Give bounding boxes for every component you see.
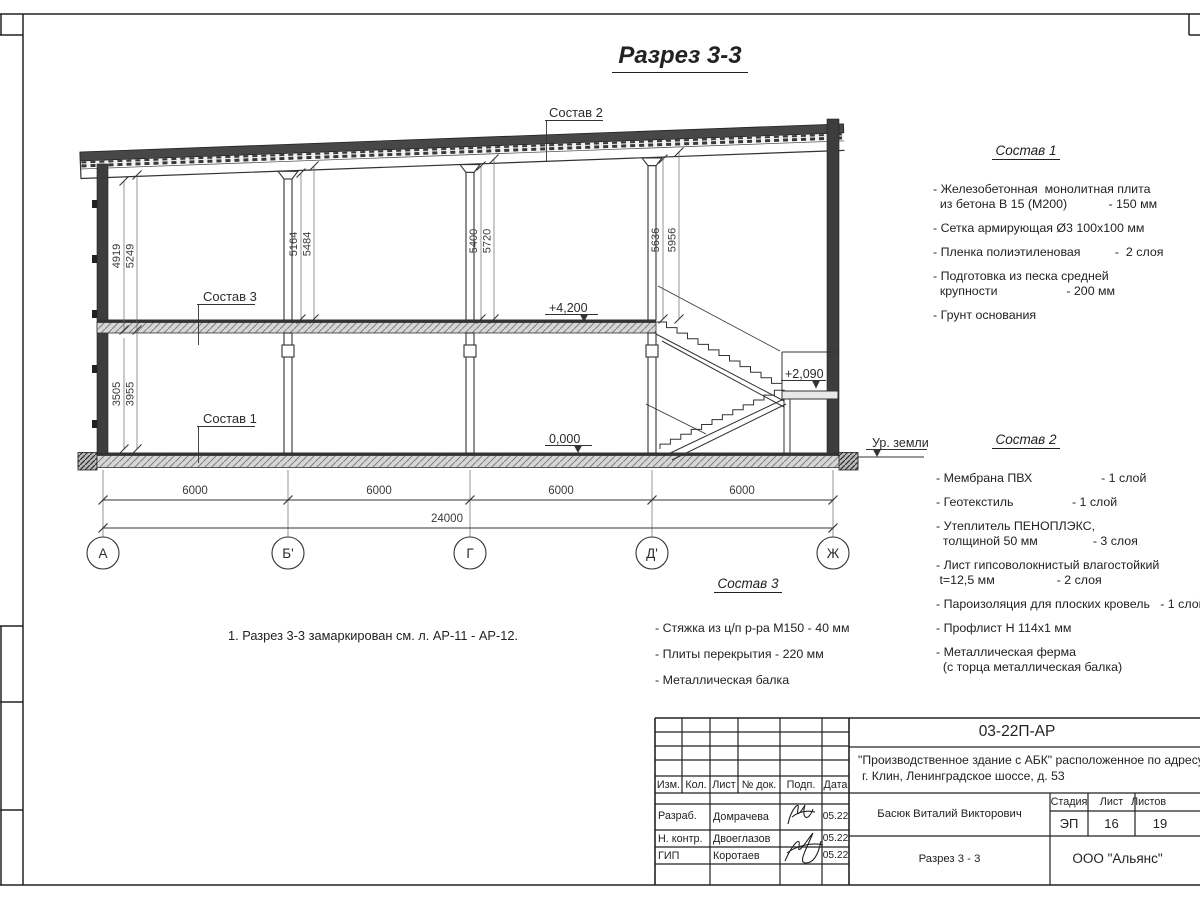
span-dim-3: 6000 — [548, 485, 574, 497]
signature-1 — [788, 805, 815, 824]
composition3-title: Состав 3 — [660, 576, 836, 593]
vertical-dimension-labels: 4919 5249 3505 3955 5164 5484 5400 5720 … — [111, 228, 679, 406]
ground-slab — [78, 453, 924, 471]
elev-floor2: +4,200 — [549, 301, 588, 315]
composition2-list: - Мембрана ПВХ - 1 слой - Геотекстиль - … — [936, 471, 1200, 684]
callout-sostav2: Состав 2 — [549, 105, 603, 120]
ground-level-label: Ур. земли — [872, 436, 929, 450]
list-item: - Стяжка из ц/п р-ра М150 - 40 мм — [655, 621, 849, 636]
date-nkontr: 05.22 — [822, 833, 849, 844]
span-dim-2: 6000 — [366, 485, 392, 497]
page-title: Разрез 3-3 — [540, 42, 820, 73]
project-name-line2: г. Клин, Ленинградское шоссе, д. 53 — [862, 769, 1065, 783]
composition2-title: Состав 2 — [940, 432, 1112, 449]
dim-4919: 4919 — [111, 244, 123, 268]
dim-5400: 5400 — [468, 229, 480, 253]
axis-g: Г — [466, 546, 474, 561]
callout-sostav3: Состав 3 — [203, 289, 257, 304]
composition1-title: Состав 1 — [940, 143, 1112, 160]
axis-bubbles: А Б' Г Д' Ж — [87, 537, 849, 569]
roof — [80, 124, 844, 179]
composition1-list: - Железобетонная монолитная плита из бет… — [933, 182, 1163, 332]
list-item: - Железобетонная монолитная плита из бет… — [933, 182, 1163, 212]
date-gip: 05.22 — [822, 850, 849, 861]
bottom-dimensions: 6000 6000 6000 6000 24000 — [99, 470, 838, 537]
list-item: - Сетка армирующая Ø3 100х100 мм — [933, 221, 1163, 236]
role-nkontr: Н. контр. — [658, 833, 703, 845]
col-kol: Кол. — [682, 779, 710, 791]
date-razrab: 05.22 — [822, 811, 849, 822]
project-name-line1: "Производственное здание с АБК" располож… — [858, 753, 1200, 767]
doc-number: 03-22П-АР — [849, 723, 1185, 741]
axis-d: Д' — [646, 546, 658, 561]
list-item: - Подготовка из песка средней крупности … — [933, 269, 1163, 299]
col-data: Дата — [822, 779, 849, 791]
span-dim-1: 6000 — [182, 485, 208, 497]
list-item: - Металлическая ферма (с торца металличе… — [936, 645, 1200, 675]
dim-5636: 5636 — [650, 228, 662, 252]
dim-5249: 5249 — [125, 244, 137, 268]
signatures — [785, 805, 823, 863]
role-gip: ГИП — [658, 850, 679, 862]
col-list: Лист — [710, 779, 738, 791]
col-izm: Изм. — [655, 779, 682, 791]
list-item: - Лист гипсоволокнистый влагостойкий t=1… — [936, 558, 1200, 588]
elev-zero: 0,000 — [549, 432, 580, 446]
list-item: - Плиты перекрытия - 220 мм — [655, 647, 849, 662]
composition3-list: - Стяжка из ц/п р-ра М150 - 40 мм - Плит… — [655, 621, 849, 697]
role-razrab: Разраб. — [658, 810, 697, 822]
name-korotaev: Коротаев — [713, 850, 760, 862]
dim-5956: 5956 — [667, 228, 679, 252]
name-dvoeglazov: Двоеглазов — [713, 833, 770, 845]
dim-3955: 3955 — [125, 382, 137, 406]
sheet-header: Лист — [1088, 796, 1135, 808]
columns — [278, 158, 662, 453]
sheet-note: 1. Разрез 3-3 замаркирован см. л. АР-11 … — [228, 628, 518, 643]
titleblock-drawing-title: Разрез 3 - 3 — [849, 853, 1050, 865]
list-item: - Геотекстиль - 1 слой — [936, 495, 1200, 510]
name-domracheva: Домрачева — [713, 811, 769, 823]
drawing-sheet: { "sheet": { "title": "Разрез 3-3", "not… — [0, 0, 1200, 900]
axis-zh: Ж — [827, 546, 840, 561]
span-dim-4: 6000 — [729, 485, 755, 497]
list-item: - Пленка полиэтиленовая - 2 слоя — [933, 245, 1163, 260]
col-podp: Подп. — [780, 779, 822, 791]
elevation-marks — [545, 315, 927, 458]
floor-slab — [97, 320, 656, 334]
company-name: ООО "Альянс" — [1050, 851, 1185, 866]
callout-sostav1: Состав 1 — [203, 411, 257, 426]
sheets-value: 19 — [1135, 816, 1185, 831]
total-dim: 24000 — [431, 513, 463, 525]
list-item: - Профлист Н 114х1 мм — [936, 621, 1200, 636]
dim-5164: 5164 — [288, 232, 300, 256]
dim-5720: 5720 — [482, 229, 494, 253]
axis-b: Б' — [282, 546, 293, 561]
list-item: - Мембрана ПВХ - 1 слой — [936, 471, 1200, 486]
elev-landing: +2,090 — [785, 367, 824, 381]
stage-header: Стадия — [1050, 796, 1088, 808]
list-item: - Утеплитель ПЕНОПЛЭКС, толщиной 50 мм -… — [936, 519, 1200, 549]
stage-value: ЭП — [1050, 816, 1088, 831]
list-item: - Металлическая балка — [655, 673, 849, 688]
list-item: - Грунт основания — [933, 308, 1163, 323]
sheet-value: 16 — [1088, 816, 1135, 831]
dim-3505: 3505 — [111, 382, 123, 406]
dim-5484: 5484 — [302, 232, 314, 256]
sheets-header: Листов — [1131, 796, 1200, 808]
list-item: - Пароизоляция для плоских кровель - 1 с… — [936, 597, 1200, 612]
signature-2 — [785, 833, 823, 863]
axis-a: А — [98, 546, 107, 561]
supervisor-name: Басюк Виталий Викторович — [849, 808, 1050, 820]
col-ndok: № док. — [738, 779, 780, 791]
